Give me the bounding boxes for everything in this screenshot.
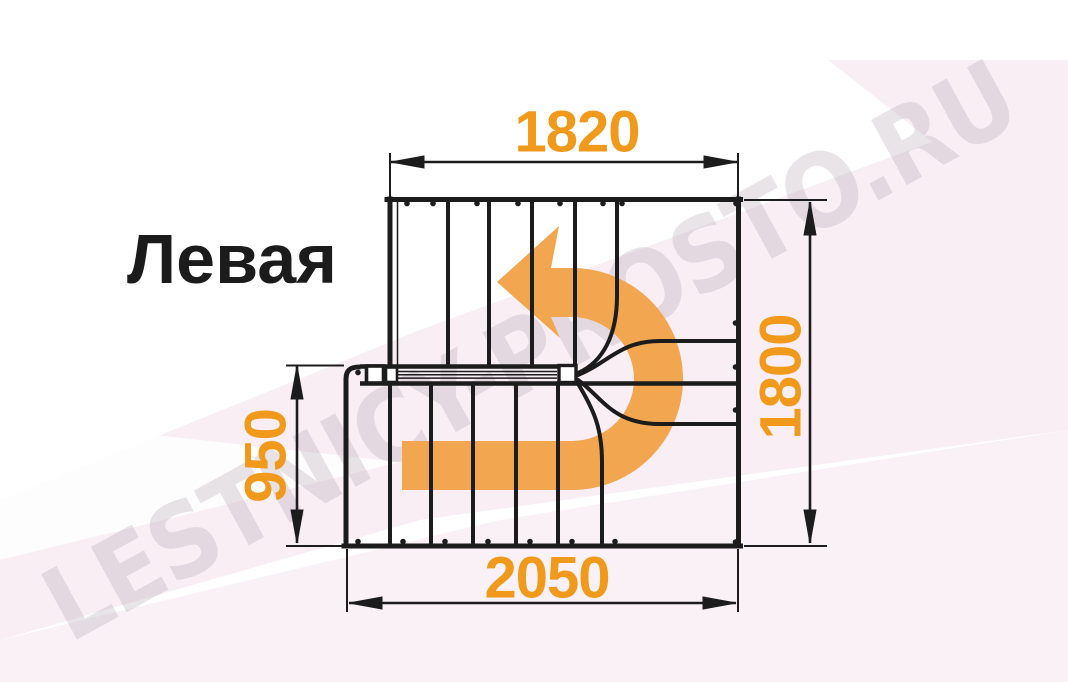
direction-arrow <box>402 226 683 490</box>
dimension-top-label: 1820 <box>514 99 639 166</box>
baluster-dot <box>557 201 563 207</box>
baluster-dot <box>733 364 739 370</box>
baluster-dot <box>527 539 533 545</box>
baluster-dot <box>612 539 618 545</box>
baluster-dot <box>600 201 606 207</box>
left-newel-post <box>367 366 384 383</box>
baluster-dot <box>569 539 575 545</box>
baluster-dot <box>733 320 739 326</box>
lower-left-edge <box>346 367 358 546</box>
page-title: Левая <box>127 219 337 299</box>
staircase-plan-page: LESTNICY-PROSTO.RU <box>0 0 1068 682</box>
stringer-joint <box>386 368 397 383</box>
baluster-dot <box>400 539 406 545</box>
baluster-dot <box>355 370 361 376</box>
baluster-dot <box>355 539 361 545</box>
baluster-dot <box>485 539 491 545</box>
baluster-dot <box>515 201 521 207</box>
baluster-dot <box>430 201 436 207</box>
baluster-dot <box>733 539 739 545</box>
dimension-left-label: 950 <box>233 409 300 503</box>
direction-arrow-shape <box>402 226 683 490</box>
center-newel-post <box>559 366 576 383</box>
baluster-dot <box>404 201 410 207</box>
dimension-bottom-label: 2050 <box>484 545 609 612</box>
baluster-dot <box>619 201 625 207</box>
baluster-dot <box>442 539 448 545</box>
baluster-dot <box>474 201 480 207</box>
dimension-right-label: 1800 <box>748 314 815 439</box>
baluster-dot <box>733 407 739 413</box>
baluster-dot <box>733 201 739 207</box>
